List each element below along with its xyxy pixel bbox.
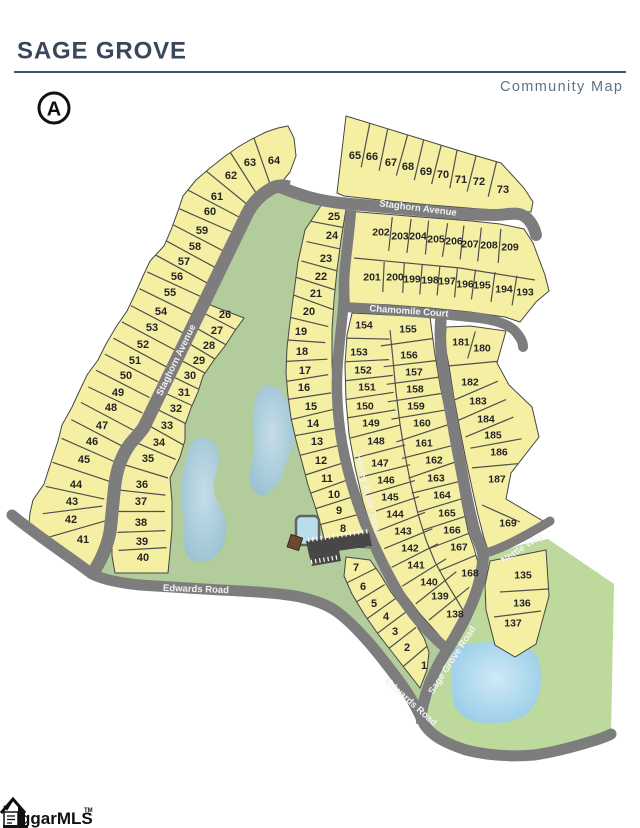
svg-text:186: 186	[490, 447, 508, 459]
svg-text:47: 47	[96, 420, 108, 432]
svg-text:159: 159	[407, 401, 425, 413]
svg-text:54: 54	[155, 306, 168, 318]
svg-text:66: 66	[366, 151, 378, 163]
svg-text:72: 72	[473, 176, 485, 188]
svg-text:10: 10	[328, 489, 340, 501]
svg-text:194: 194	[495, 284, 513, 296]
svg-text:21: 21	[310, 288, 322, 300]
svg-text:139: 139	[431, 591, 449, 603]
svg-text:69: 69	[420, 166, 432, 178]
svg-text:145: 145	[381, 492, 399, 504]
svg-text:136: 136	[513, 598, 531, 610]
svg-text:204: 204	[409, 231, 427, 243]
svg-text:4: 4	[383, 611, 390, 623]
svg-text:53: 53	[146, 322, 158, 334]
svg-text:39: 39	[136, 536, 148, 548]
svg-text:68: 68	[402, 161, 414, 173]
svg-text:184: 184	[477, 414, 495, 426]
svg-text:29: 29	[193, 355, 205, 367]
svg-text:50: 50	[120, 370, 132, 382]
svg-text:154: 154	[355, 320, 373, 332]
svg-text:202: 202	[372, 227, 390, 239]
svg-text:Community Map: Community Map	[500, 79, 622, 95]
svg-text:181: 181	[452, 337, 470, 349]
svg-text:138: 138	[446, 609, 464, 621]
svg-text:150: 150	[356, 401, 374, 413]
svg-text:14: 14	[307, 418, 320, 430]
svg-text:182: 182	[461, 377, 479, 389]
svg-text:49: 49	[112, 387, 124, 399]
svg-text:11: 11	[321, 473, 333, 485]
svg-text:ggarMLS: ggarMLS	[20, 809, 93, 828]
svg-text:45: 45	[78, 454, 90, 466]
svg-text:157: 157	[405, 367, 423, 379]
svg-text:183: 183	[469, 396, 487, 408]
svg-text:70: 70	[437, 169, 449, 181]
svg-text:27: 27	[211, 325, 223, 337]
svg-text:151: 151	[358, 382, 376, 394]
svg-text:SAGE GROVE: SAGE GROVE	[17, 38, 186, 65]
svg-text:3: 3	[392, 626, 398, 638]
svg-text:60: 60	[204, 206, 216, 218]
svg-text:16: 16	[298, 382, 310, 394]
svg-text:40: 40	[137, 552, 149, 564]
svg-text:196: 196	[456, 279, 474, 291]
svg-text:195: 195	[473, 280, 491, 292]
svg-text:1: 1	[421, 660, 427, 672]
svg-text:25: 25	[328, 211, 340, 223]
svg-text:185: 185	[484, 430, 502, 442]
svg-text:187: 187	[488, 474, 506, 486]
svg-text:203: 203	[391, 231, 409, 243]
svg-text:168: 168	[461, 568, 479, 580]
svg-text:167: 167	[450, 542, 468, 554]
svg-text:43: 43	[66, 496, 78, 508]
svg-text:55: 55	[164, 287, 176, 299]
svg-text:207: 207	[461, 239, 479, 251]
svg-text:205: 205	[427, 234, 445, 246]
svg-text:73: 73	[497, 184, 509, 196]
svg-text:46: 46	[86, 436, 98, 448]
svg-text:166: 166	[443, 525, 461, 537]
svg-text:200: 200	[386, 272, 404, 284]
svg-text:7: 7	[353, 562, 359, 574]
svg-text:32: 32	[170, 403, 182, 415]
svg-text:59: 59	[196, 225, 208, 237]
svg-text:141: 141	[407, 560, 425, 572]
svg-text:71: 71	[455, 174, 467, 186]
svg-text:Edwards Road: Edwards Road	[163, 583, 230, 596]
svg-text:A: A	[47, 99, 61, 121]
svg-text:61: 61	[211, 191, 223, 203]
svg-text:62: 62	[225, 170, 237, 182]
svg-text:51: 51	[129, 355, 141, 367]
svg-text:31: 31	[178, 387, 190, 399]
svg-text:28: 28	[203, 340, 215, 352]
svg-text:63: 63	[244, 157, 256, 169]
svg-text:37: 37	[135, 496, 147, 508]
svg-text:56: 56	[171, 271, 183, 283]
svg-text:149: 149	[362, 418, 380, 430]
svg-text:209: 209	[501, 242, 519, 254]
svg-text:22: 22	[315, 271, 327, 283]
svg-text:199: 199	[403, 274, 421, 286]
svg-text:TM: TM	[84, 808, 93, 814]
svg-text:48: 48	[105, 402, 117, 414]
svg-text:201: 201	[363, 272, 381, 284]
svg-text:147: 147	[371, 458, 389, 470]
svg-text:197: 197	[438, 276, 456, 288]
svg-text:142: 142	[401, 543, 419, 555]
svg-text:38: 38	[135, 517, 147, 529]
svg-text:35: 35	[142, 453, 154, 465]
svg-text:17: 17	[299, 365, 311, 377]
svg-text:163: 163	[427, 473, 445, 485]
svg-text:64: 64	[268, 155, 281, 167]
svg-text:146: 146	[377, 475, 395, 487]
svg-text:144: 144	[386, 509, 404, 521]
svg-text:23: 23	[320, 253, 332, 265]
svg-text:164: 164	[433, 490, 451, 502]
svg-text:15: 15	[305, 401, 317, 413]
svg-text:65: 65	[349, 150, 361, 162]
svg-text:208: 208	[480, 240, 498, 252]
svg-text:140: 140	[420, 577, 438, 589]
svg-text:18: 18	[296, 346, 308, 358]
svg-text:58: 58	[189, 241, 201, 253]
svg-text:153: 153	[350, 347, 368, 359]
svg-text:8: 8	[340, 523, 346, 535]
svg-text:26: 26	[219, 309, 231, 321]
svg-text:20: 20	[303, 306, 315, 318]
svg-text:161: 161	[415, 438, 433, 450]
svg-text:152: 152	[354, 365, 372, 377]
svg-text:160: 160	[413, 418, 431, 430]
svg-text:41: 41	[77, 534, 89, 546]
svg-text:143: 143	[394, 526, 412, 538]
svg-text:36: 36	[136, 479, 148, 491]
svg-text:5: 5	[371, 598, 377, 610]
svg-text:137: 137	[504, 618, 522, 630]
svg-text:6: 6	[360, 581, 366, 593]
svg-text:135: 135	[514, 570, 532, 582]
svg-text:19: 19	[295, 326, 307, 338]
svg-text:24: 24	[326, 230, 339, 242]
svg-text:12: 12	[315, 455, 327, 467]
svg-text:155: 155	[399, 324, 417, 336]
svg-text:67: 67	[385, 157, 397, 169]
svg-text:180: 180	[473, 343, 491, 355]
svg-text:2: 2	[404, 642, 410, 654]
svg-text:13: 13	[311, 436, 323, 448]
svg-text:198: 198	[421, 275, 439, 287]
svg-text:52: 52	[137, 339, 149, 351]
svg-text:193: 193	[516, 287, 534, 299]
svg-text:165: 165	[438, 508, 456, 520]
svg-text:44: 44	[70, 479, 83, 491]
svg-text:30: 30	[184, 370, 196, 382]
svg-text:33: 33	[161, 420, 173, 432]
svg-text:156: 156	[400, 350, 418, 362]
svg-text:158: 158	[406, 384, 424, 396]
svg-text:162: 162	[425, 455, 443, 467]
svg-text:148: 148	[367, 436, 385, 448]
svg-text:34: 34	[153, 437, 166, 449]
svg-text:9: 9	[336, 505, 342, 517]
svg-text:57: 57	[178, 256, 190, 268]
svg-text:42: 42	[65, 514, 77, 526]
svg-text:169: 169	[499, 518, 517, 530]
